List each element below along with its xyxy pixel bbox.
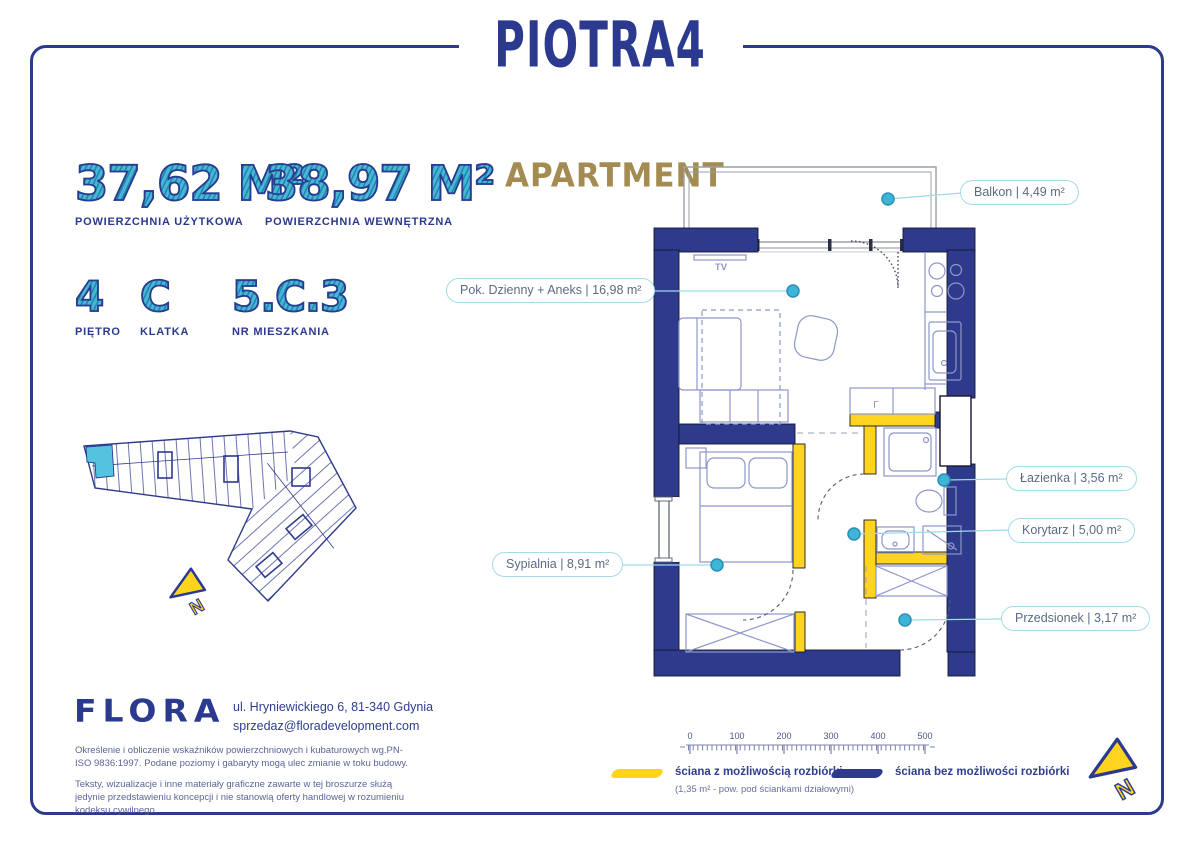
removable-wall-swatch <box>610 769 665 778</box>
svg-text:N: N <box>1111 774 1139 806</box>
legend-structural-wall: ściana bez możliwości rozbiórki <box>832 766 1069 780</box>
room-label-sypialnia: Sypialnia | 8,91 m² <box>492 552 623 577</box>
scale-ruler: 0 100 200 300 400 500 <box>680 731 935 750</box>
north-arrow-icon: N <box>1090 739 1139 806</box>
legend-removable-note: (1,35 m² - pow. pod ściankami działowymi… <box>675 784 854 795</box>
scale-tick-200: 200 <box>776 731 791 741</box>
legend-removable-label: ściana z możliwością rozbiórki <box>675 766 854 780</box>
disclaimer-line-1: Określenie i obliczenie wskaźników powie… <box>75 744 410 770</box>
right-wall-niche <box>940 396 971 466</box>
fridge-symbol: Γ <box>873 400 879 411</box>
svg-text:N: N <box>186 595 207 619</box>
disclaimer-line-2: Teksty, wizualizacje i inne materiały gr… <box>75 778 410 817</box>
bedroom-window <box>654 497 679 562</box>
scale-tick-300: 300 <box>823 731 838 741</box>
structural-wall-swatch <box>830 769 885 778</box>
developer-logo: FLORA <box>74 692 225 729</box>
scale-tick-400: 400 <box>870 731 885 741</box>
scale-tick-0: 0 <box>687 731 692 741</box>
developer-contact: ul. Hryniewickiego 6, 81-340 Gdynia sprz… <box>233 698 433 736</box>
room-label-lazienka: Łazienka | 3,56 m² <box>1006 466 1137 491</box>
scale-tick-100: 100 <box>729 731 744 741</box>
legal-disclaimer: Określenie i obliczenie wskaźników powie… <box>75 744 410 826</box>
room-label-przedsionek: Przedsionek | 3,17 m² <box>1001 606 1150 631</box>
room-label-balkon: Balkon | 4,49 m² <box>960 180 1079 205</box>
legend-removable-wall: ściana z możliwością rozbiórki (1,35 m² … <box>612 766 854 795</box>
legend-structural-label: ściana bez możliwości rozbiórki <box>895 766 1069 780</box>
furniture <box>679 252 964 652</box>
developer-email: sprzedaz@floradevelopment.com <box>233 717 433 736</box>
window-band-top <box>756 239 904 252</box>
mini-building-plan <box>84 431 356 601</box>
room-label-korytarz: Korytarz | 5,00 m² <box>1008 518 1135 543</box>
north-arrow-icon: N <box>170 569 207 619</box>
room-label-pok-dzienny: Pok. Dzienny + Aneks | 16,98 m² <box>446 278 655 303</box>
highlighted-unit <box>86 445 114 478</box>
door-swings <box>743 241 950 650</box>
brochure-page: PIOTRA4 37,62 M² POWIERZCHNIA UŻYTKOWA 3… <box>0 0 1200 849</box>
tv-label: TV <box>715 262 728 273</box>
balcony-outline <box>684 167 936 236</box>
scale-tick-500: 500 <box>917 731 932 741</box>
developer-address: ul. Hryniewickiego 6, 81-340 Gdynia <box>233 698 433 717</box>
